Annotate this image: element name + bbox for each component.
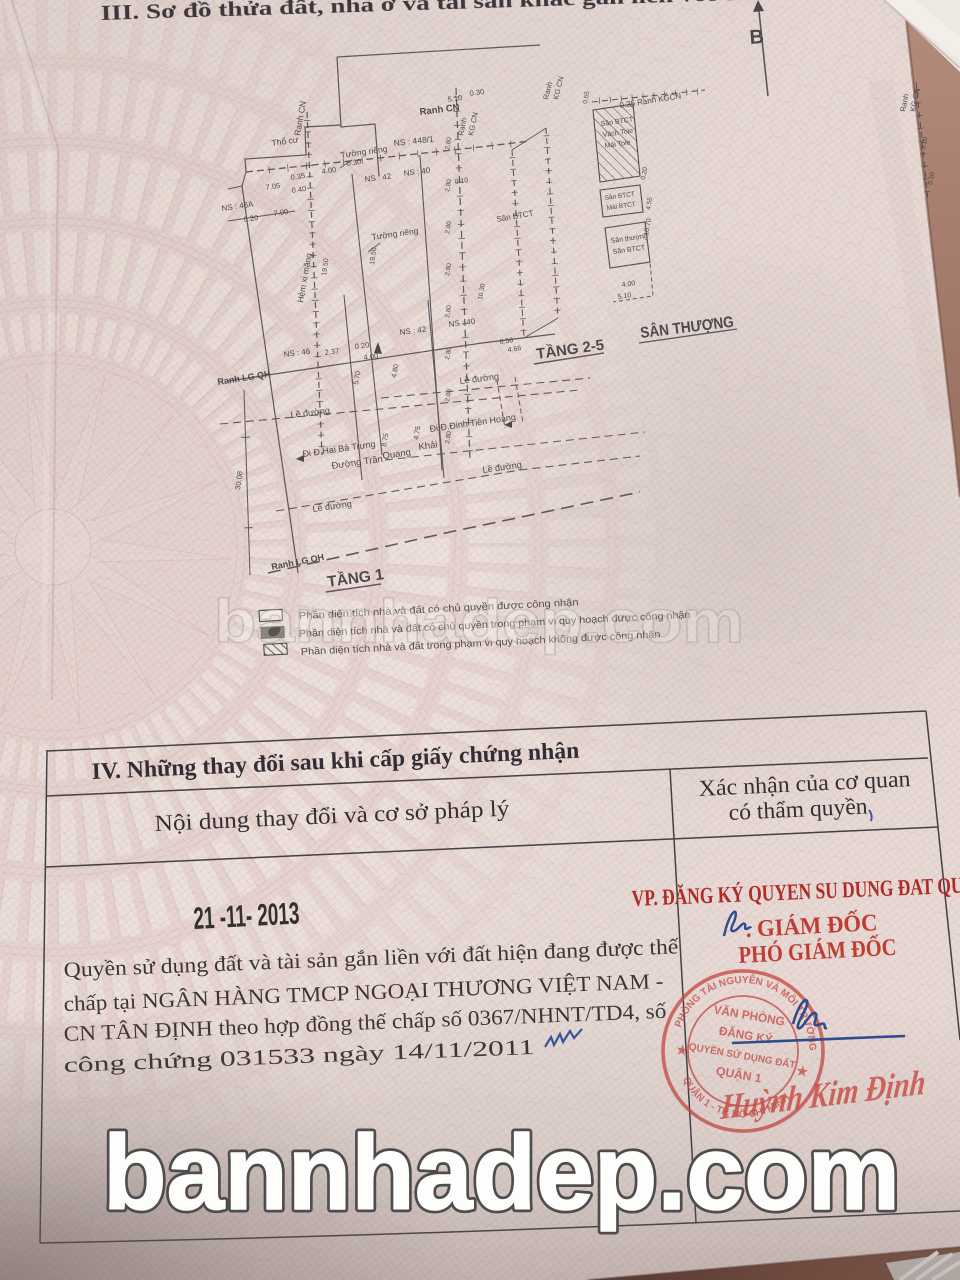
svg-text:bannhadep.com: bannhadep.com [103,1114,900,1232]
